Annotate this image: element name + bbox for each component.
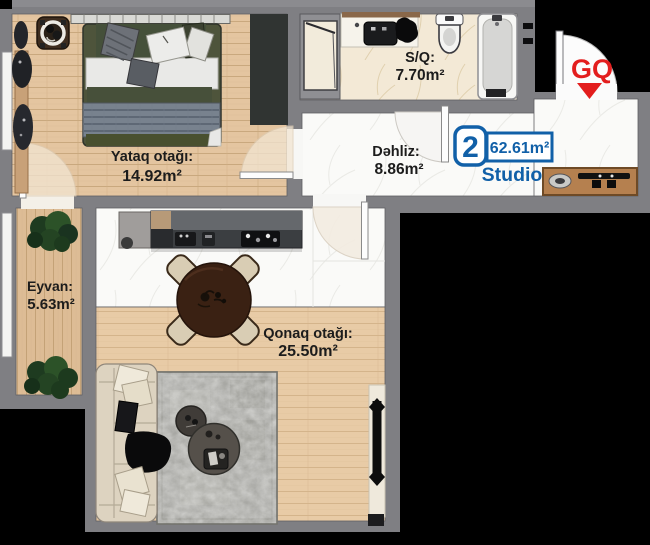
svg-text:S/Q:: S/Q: — [405, 50, 435, 66]
svg-text:Eyvan:: Eyvan: — [27, 278, 73, 294]
svg-text:7.70m²: 7.70m² — [395, 67, 444, 84]
svg-text:62.61m²: 62.61m² — [490, 140, 550, 157]
svg-text:Dəhliz:: Dəhliz: — [372, 144, 420, 160]
svg-text:14.92m²: 14.92m² — [122, 168, 182, 185]
svg-text:Yataq otağı:: Yataq otağı: — [111, 149, 193, 165]
svg-text:5.63m²: 5.63m² — [27, 296, 75, 313]
svg-text:25.50m²: 25.50m² — [278, 343, 338, 360]
svg-text:GQ: GQ — [571, 54, 613, 84]
svg-text:Qonaq otağı:: Qonaq otağı: — [263, 326, 352, 342]
svg-text:2: 2 — [462, 131, 479, 164]
svg-text:8.86m²: 8.86m² — [374, 161, 423, 178]
svg-text:Studio: Studio — [482, 164, 543, 186]
